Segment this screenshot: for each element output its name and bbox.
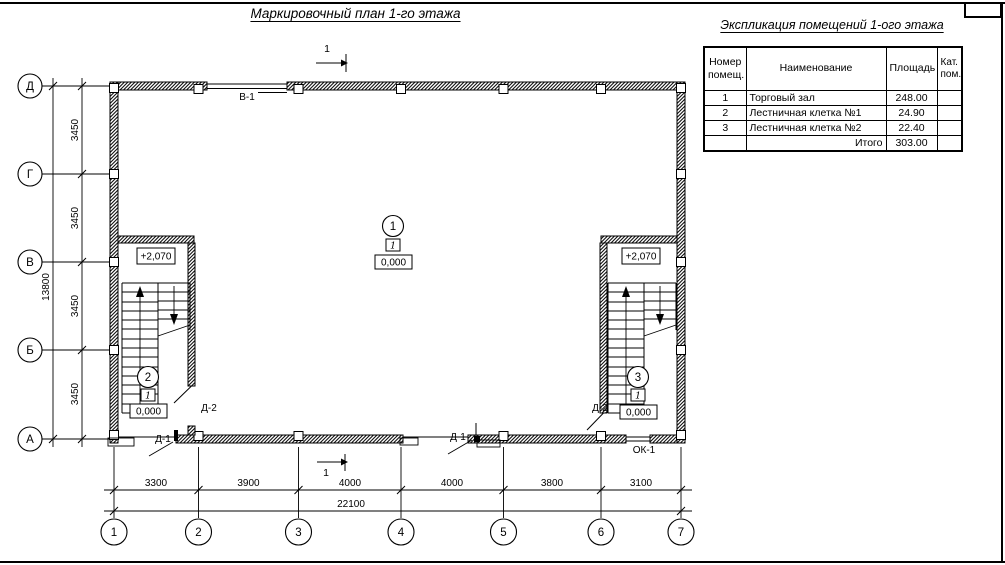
room-type-2: 1 bbox=[145, 391, 151, 402]
window-top bbox=[207, 84, 287, 89]
room-number-3: 3 bbox=[635, 372, 641, 384]
door-mark-d1-left: Д-1 bbox=[155, 434, 171, 445]
col-header-area: Площадь bbox=[886, 47, 937, 91]
col-header-category: Кат. пом. bbox=[937, 47, 962, 91]
window-bottom bbox=[626, 437, 650, 441]
axis-label-4: 4 bbox=[398, 527, 405, 539]
level-upper-left: +2,070 bbox=[137, 248, 175, 264]
axis-label-3: 3 bbox=[295, 527, 301, 539]
drawing-title: Маркировочный план 1-го этажа bbox=[228, 6, 483, 21]
total-label: Итого bbox=[746, 136, 886, 152]
room-3-category bbox=[937, 121, 962, 136]
horizontal-dimensions: 3300 3900 4000 4000 3800 3100 22100 bbox=[145, 478, 653, 510]
dim-3450-1: 3450 bbox=[70, 118, 81, 141]
window-mark-ok1: ОК-1 bbox=[633, 445, 656, 456]
axis-label-6: 6 bbox=[598, 527, 604, 539]
level-zero-3: 0,000 bbox=[626, 408, 651, 419]
table-row-2: 2 Лестничная клетка №1 24.90 bbox=[704, 106, 962, 121]
axis-label-1: 1 bbox=[111, 527, 117, 539]
col-axis-grid bbox=[104, 447, 692, 518]
col-header-name: Наименование bbox=[746, 47, 886, 91]
table-total-row: Итого 303.00 bbox=[704, 136, 962, 152]
explication-table: Номер помещ. Наименование Площадь Кат. п… bbox=[703, 46, 963, 152]
room-3-area: 22.40 bbox=[886, 121, 937, 136]
table-row-3: 3 Лестничная клетка №2 22.40 bbox=[704, 121, 962, 136]
room-2-number: 2 bbox=[704, 106, 746, 121]
dim-3800: 3800 bbox=[541, 478, 564, 489]
dim-3450-2: 3450 bbox=[70, 206, 81, 229]
axis-label-b: Б bbox=[26, 345, 34, 357]
drawing-sheet: Д Г В Б А 3450 3450 3450 3450 13800 3300… bbox=[0, 0, 1005, 565]
room-tag-1: 1 1 0,000 bbox=[375, 216, 412, 270]
row-axis-bubbles: Д Г В Б А bbox=[18, 74, 42, 451]
dim-3300: 3300 bbox=[145, 478, 168, 489]
room-1-name: Торговый зал bbox=[746, 91, 886, 106]
col-axis-bubbles: 1 2 3 4 5 6 7 bbox=[101, 519, 694, 545]
room-2-name: Лестничная клетка №1 bbox=[746, 106, 886, 121]
axis-label-2: 2 bbox=[195, 527, 201, 539]
room-1-category bbox=[937, 91, 962, 106]
dim-13800: 13800 bbox=[41, 273, 52, 301]
axis-label-v: В bbox=[26, 257, 34, 269]
table-header-row: Номер помещ. Наименование Площадь Кат. п… bbox=[704, 47, 962, 91]
explication-title: Экспликация помещений 1-ого этажа bbox=[703, 18, 961, 32]
room-3-name: Лестничная клетка №2 bbox=[746, 121, 886, 136]
section-number-top: 1 bbox=[324, 43, 330, 55]
sheet-frame-right bbox=[1001, 2, 1003, 563]
table-row-1: 1 Торговый зал 248.00 bbox=[704, 91, 962, 106]
explication: Экспликация помещений 1-ого этажа Номер … bbox=[703, 18, 961, 152]
room-tag-3: 3 1 0,000 bbox=[620, 367, 657, 420]
window-mark-v1: В-1 bbox=[239, 92, 255, 103]
svg-text:+2,070: +2,070 bbox=[141, 252, 172, 263]
room-3-number: 3 bbox=[704, 121, 746, 136]
dim-3450-4: 3450 bbox=[70, 382, 81, 405]
opening-marks: В-1 ОК-1 Д-1 Д-1 Д-2 Д-2 bbox=[155, 92, 656, 456]
room-1-area: 248.00 bbox=[886, 91, 937, 106]
sheet-frame-bottom bbox=[0, 561, 1005, 563]
room-1-number: 1 bbox=[704, 91, 746, 106]
dim-3900: 3900 bbox=[237, 478, 260, 489]
axis-label-g: Г bbox=[27, 169, 34, 181]
door-mark-d2-left: Д-2 bbox=[201, 403, 217, 414]
room-2-category bbox=[937, 106, 962, 121]
door-mark-d1-middle: Д-1 bbox=[450, 432, 466, 443]
total-area: 303.00 bbox=[886, 136, 937, 152]
sheet-frame-top bbox=[0, 2, 1005, 4]
room-number-2: 2 bbox=[145, 372, 151, 384]
room-tag-2: 2 1 0,000 bbox=[130, 367, 167, 419]
section-mark-bottom: 1 bbox=[317, 454, 348, 479]
dim-22100: 22100 bbox=[337, 499, 365, 510]
room-type-1: 1 bbox=[390, 241, 396, 252]
axis-label-7: 7 bbox=[678, 527, 684, 539]
col-header-number: Номер помещ. bbox=[704, 47, 746, 91]
room-2-area: 24.90 bbox=[886, 106, 937, 121]
section-number-bottom: 1 bbox=[323, 467, 329, 479]
dim-3100: 3100 bbox=[630, 478, 653, 489]
room-type-3: 1 bbox=[635, 391, 641, 402]
level-upper-right: +2,070 bbox=[622, 248, 660, 264]
level-zero-2: 0,000 bbox=[136, 407, 161, 418]
axis-label-d: Д bbox=[26, 81, 34, 93]
dim-4000-2: 4000 bbox=[441, 478, 464, 489]
section-mark-top: 1 bbox=[316, 43, 348, 72]
sheet-frame-corner-box bbox=[964, 2, 1002, 18]
level-zero-1: 0,000 bbox=[381, 258, 406, 269]
door-mark-d2-right: Д-2 bbox=[592, 403, 608, 414]
svg-text:+2,070: +2,070 bbox=[626, 252, 657, 263]
axis-label-5: 5 bbox=[500, 527, 506, 539]
dim-4000-1: 4000 bbox=[339, 478, 362, 489]
axis-label-a: А bbox=[26, 434, 34, 446]
room-number-1: 1 bbox=[390, 221, 396, 233]
dim-3450-3: 3450 bbox=[70, 294, 81, 317]
